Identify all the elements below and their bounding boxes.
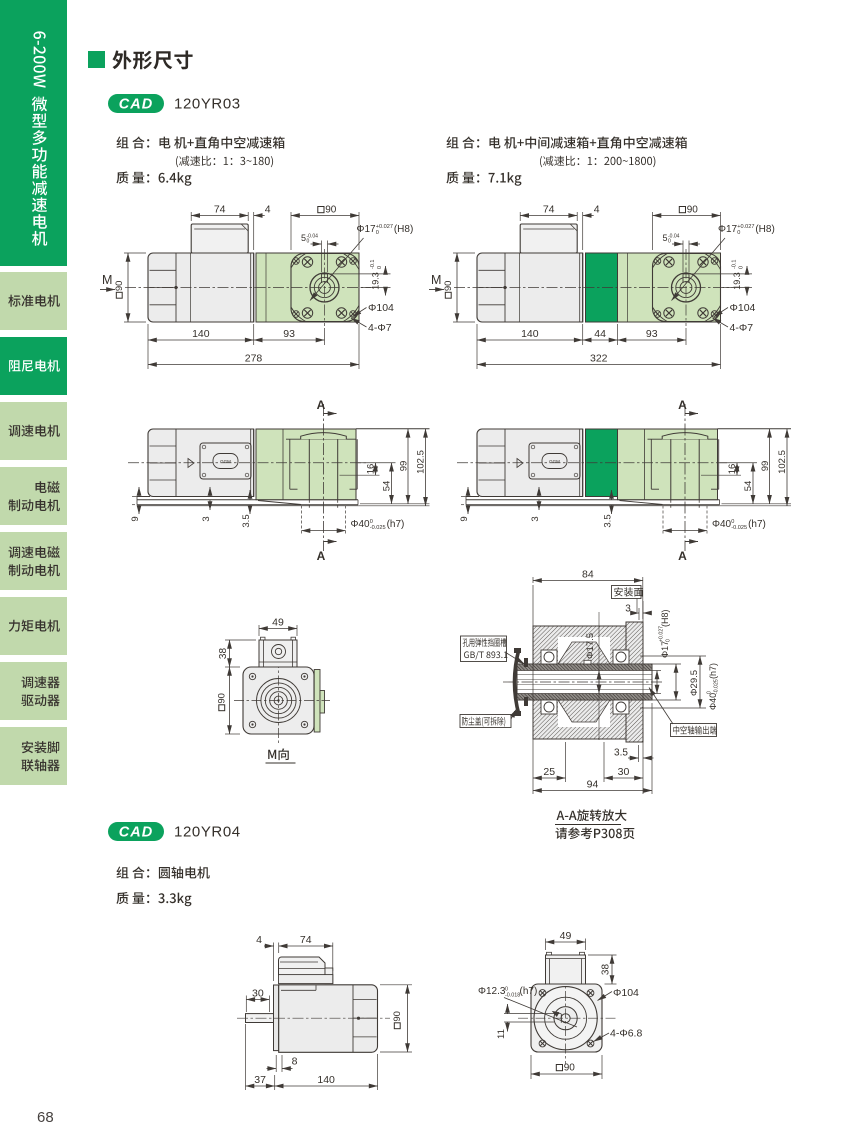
- svg-text:3: 3: [201, 516, 212, 521]
- svg-text:A: A: [678, 398, 687, 412]
- svg-text:25: 25: [543, 766, 555, 778]
- svg-text:99: 99: [760, 461, 771, 472]
- svg-text:120YR03: 120YR03: [174, 96, 241, 113]
- svg-text:A: A: [678, 549, 687, 563]
- svg-text:M: M: [431, 273, 441, 287]
- svg-text:5: 5: [663, 233, 668, 243]
- svg-text:0: 0: [737, 230, 740, 236]
- svg-text:(h7): (h7): [748, 519, 766, 530]
- svg-text:4: 4: [265, 204, 271, 216]
- svg-text:9: 9: [130, 516, 141, 521]
- svg-text:+0.027: +0.027: [659, 626, 665, 642]
- svg-text:90: 90: [217, 693, 228, 704]
- svg-text:37: 37: [254, 1074, 266, 1086]
- svg-text:Φ17.5: Φ17.5: [585, 633, 596, 659]
- svg-text:(H8): (H8): [394, 224, 413, 235]
- svg-text:(h7): (h7): [387, 519, 405, 530]
- svg-text:-0.018: -0.018: [505, 993, 520, 999]
- svg-text:8: 8: [292, 1056, 298, 1068]
- svg-text:GGM: GGM: [549, 459, 560, 464]
- svg-text:0: 0: [307, 239, 310, 245]
- svg-text:3.5: 3.5: [241, 514, 252, 527]
- svg-text:CAD: CAD: [119, 97, 153, 113]
- svg-text:Φ29.5: Φ29.5: [689, 670, 700, 696]
- svg-text:102.5: 102.5: [416, 450, 427, 474]
- svg-text:11: 11: [496, 1029, 507, 1039]
- svg-text:90: 90: [325, 205, 337, 216]
- svg-text:Φ12.3: Φ12.3: [478, 986, 506, 997]
- svg-text:Φ40: Φ40: [708, 693, 718, 710]
- svg-text:4: 4: [256, 934, 262, 946]
- svg-text:93: 93: [283, 328, 295, 340]
- svg-text:A: A: [317, 549, 326, 563]
- svg-text:93: 93: [646, 328, 658, 340]
- svg-text:44: 44: [594, 328, 606, 340]
- svg-text:16: 16: [366, 464, 377, 475]
- svg-text:Φ17: Φ17: [718, 224, 738, 235]
- svg-text:16: 16: [727, 464, 738, 475]
- svg-text:(h7): (h7): [520, 986, 538, 997]
- svg-text:30: 30: [252, 988, 264, 1000]
- svg-text:Φ40: Φ40: [351, 519, 371, 530]
- svg-text:102.5: 102.5: [777, 450, 788, 474]
- svg-text:0: 0: [707, 691, 713, 694]
- svg-text:(H8): (H8): [755, 224, 774, 235]
- svg-text:GGM: GGM: [220, 459, 231, 464]
- svg-text:Φ104: Φ104: [730, 302, 756, 314]
- svg-text:-0.025: -0.025: [731, 525, 747, 531]
- svg-text:140: 140: [192, 328, 210, 340]
- svg-text:94: 94: [587, 779, 599, 791]
- svg-text:0: 0: [739, 266, 745, 269]
- svg-text:90: 90: [564, 1063, 576, 1074]
- svg-text:0: 0: [668, 239, 671, 245]
- svg-text:54: 54: [743, 481, 754, 492]
- svg-text:Φ40: Φ40: [712, 519, 732, 530]
- svg-text:M: M: [102, 273, 112, 287]
- svg-text:3.5: 3.5: [614, 748, 628, 759]
- svg-text:90: 90: [443, 281, 454, 292]
- svg-text:9: 9: [459, 516, 470, 521]
- svg-text:4-Φ7: 4-Φ7: [368, 322, 392, 334]
- svg-text:49: 49: [560, 930, 572, 942]
- svg-text:3: 3: [530, 516, 541, 521]
- svg-text:140: 140: [521, 328, 539, 340]
- svg-text:(H8): (H8): [660, 609, 670, 627]
- svg-text:3: 3: [625, 604, 631, 615]
- svg-text:54: 54: [382, 481, 393, 492]
- svg-text:4-Φ6.8: 4-Φ6.8: [610, 1028, 642, 1040]
- svg-text:4-Φ7: 4-Φ7: [730, 322, 754, 334]
- svg-text:19.3: 19.3: [371, 272, 381, 290]
- svg-text:-0.025: -0.025: [714, 679, 720, 694]
- svg-text:3.5: 3.5: [603, 514, 614, 527]
- svg-text:0: 0: [666, 639, 672, 642]
- svg-text:CAD: CAD: [119, 825, 153, 841]
- svg-text:-0.1: -0.1: [732, 260, 738, 269]
- svg-text:49: 49: [272, 617, 284, 629]
- svg-text:90: 90: [114, 281, 125, 292]
- svg-text:0: 0: [377, 266, 383, 269]
- svg-text:(h7): (h7): [708, 663, 718, 679]
- svg-text:0: 0: [505, 986, 508, 992]
- svg-text:0: 0: [376, 230, 379, 236]
- svg-text:4: 4: [594, 204, 600, 216]
- svg-text:-0.1: -0.1: [370, 260, 376, 269]
- svg-text:90: 90: [392, 1011, 403, 1022]
- svg-text:278: 278: [245, 353, 263, 365]
- svg-text:99: 99: [399, 461, 410, 472]
- svg-text:120YR04: 120YR04: [174, 824, 241, 841]
- svg-text:-0.025: -0.025: [370, 525, 386, 531]
- svg-text:Φ104: Φ104: [368, 302, 394, 314]
- svg-text:30: 30: [618, 766, 630, 778]
- svg-text:Φ17: Φ17: [660, 641, 670, 658]
- svg-text:Φ104: Φ104: [613, 987, 639, 999]
- svg-text:84: 84: [582, 569, 594, 581]
- svg-text:68: 68: [37, 1109, 54, 1126]
- svg-text:322: 322: [590, 353, 608, 365]
- svg-text:38: 38: [601, 964, 612, 976]
- svg-text:38: 38: [218, 648, 229, 660]
- svg-text:5: 5: [301, 233, 306, 243]
- svg-text:19.3: 19.3: [732, 272, 742, 290]
- svg-text:A: A: [317, 398, 326, 412]
- svg-text:74: 74: [300, 934, 312, 946]
- svg-text:74: 74: [214, 204, 226, 216]
- svg-text:74: 74: [543, 204, 555, 216]
- svg-text:90: 90: [687, 205, 699, 216]
- svg-text:Φ17: Φ17: [357, 224, 377, 235]
- svg-text:140: 140: [317, 1074, 335, 1086]
